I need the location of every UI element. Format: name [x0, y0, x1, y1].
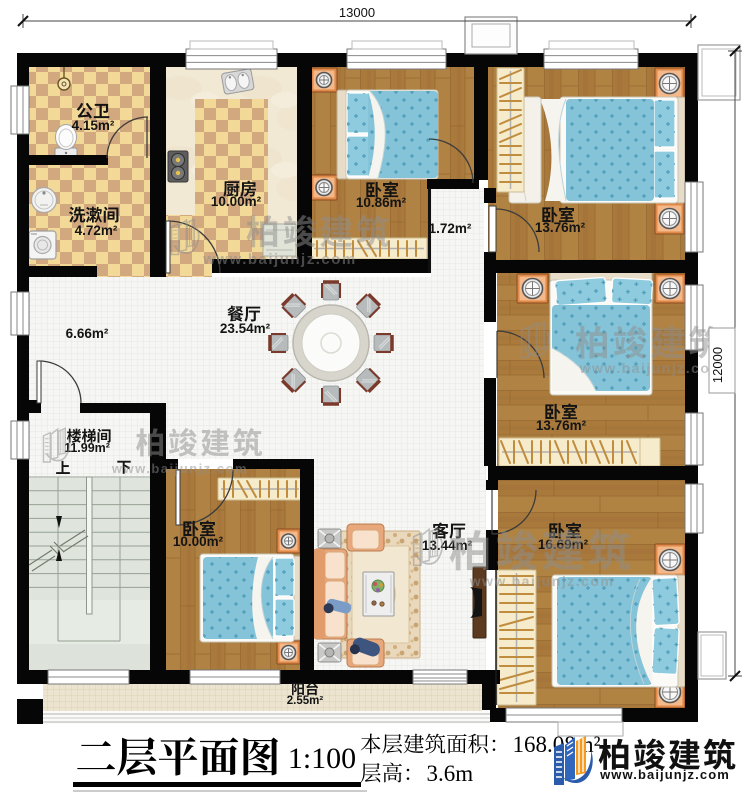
svg-text:2.55m²: 2.55m²	[287, 695, 324, 707]
svg-text:13.76m²: 13.76m²	[536, 418, 587, 433]
svg-text:www.baijunjz.com: www.baijunjz.com	[111, 461, 248, 476]
svg-text:www.baijunjz.com: www.baijunjz.com	[579, 360, 725, 376]
svg-text:4.15m²: 4.15m²	[72, 118, 115, 133]
svg-text:13000: 13000	[339, 5, 375, 20]
svg-text:10.00m²: 10.00m²	[173, 534, 224, 549]
svg-text:3.6m: 3.6m	[427, 761, 474, 786]
svg-text:www.baijunjz.com: www.baijunjz.com	[469, 573, 615, 589]
svg-text:www.baijunjz.com: www.baijunjz.com	[599, 767, 730, 782]
svg-text:23.54m²: 23.54m²	[220, 321, 271, 336]
svg-text:13.76m²: 13.76m²	[535, 220, 586, 235]
svg-text:1:100: 1:100	[288, 742, 356, 775]
svg-text:6.66m²: 6.66m²	[66, 326, 109, 341]
svg-text:11.99m²: 11.99m²	[64, 441, 110, 455]
svg-text:10.86m²: 10.86m²	[356, 195, 407, 210]
svg-text:10.00m²: 10.00m²	[211, 194, 262, 209]
svg-text:www.baijunjz.com: www.baijunjz.com	[202, 251, 356, 268]
svg-text:12000: 12000	[710, 347, 725, 383]
svg-text:1.72m²: 1.72m²	[429, 221, 472, 236]
svg-text:4.72m²: 4.72m²	[75, 223, 118, 238]
